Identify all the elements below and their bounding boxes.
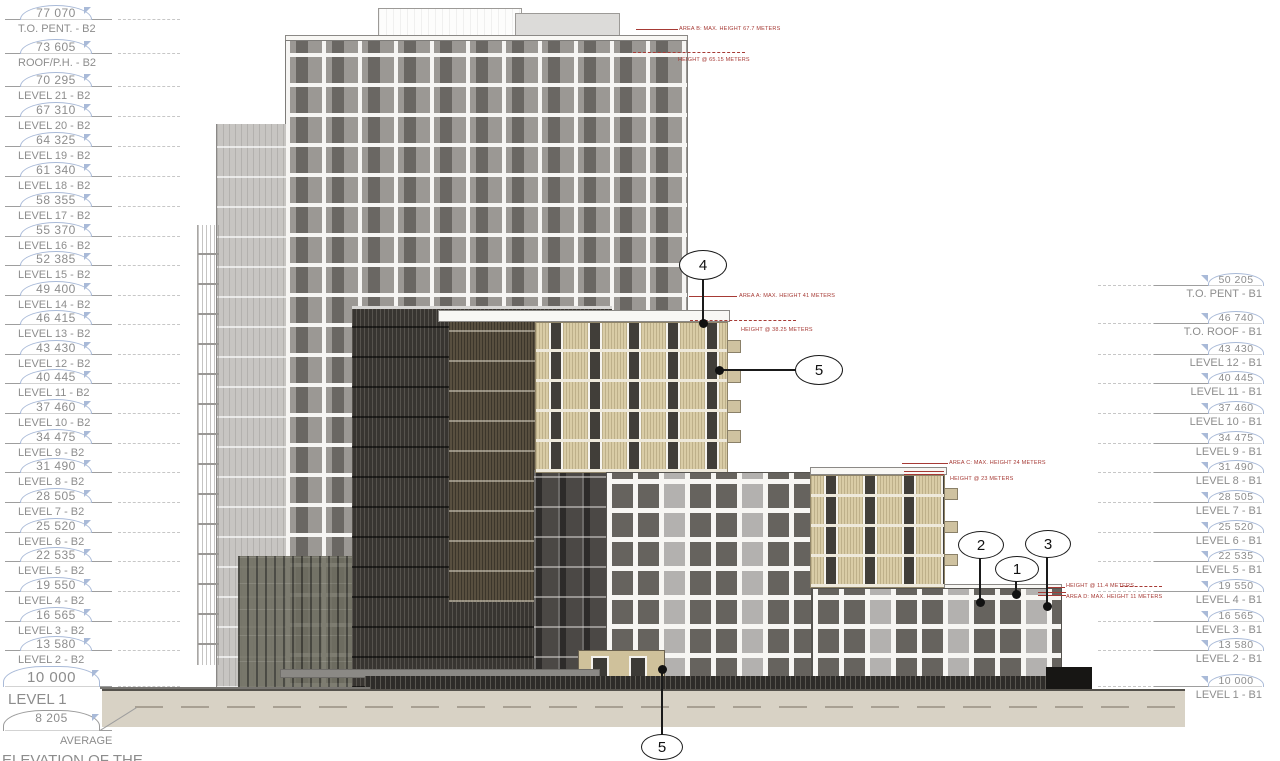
elevation-value: 22 535 [1208,549,1264,562]
level-label: LEVEL 1 - B1 [1156,689,1262,701]
area-a-building [535,322,728,473]
elevation-value: 13 580 [1208,638,1264,651]
annotation-height-line [633,52,745,53]
callout-anchor-dot [715,366,724,375]
level-witness-dashes [1098,621,1156,622]
level-label: LEVEL 4 - B1 [1156,594,1262,606]
detail-callout-3: 3 [1025,530,1071,558]
level-label: LEVEL 7 - B1 [1156,505,1262,517]
elevation-value: 67 310 [20,102,92,117]
elevation-value: 43 430 [20,340,92,355]
arc-end-tick [84,41,91,48]
area-c-building [810,475,945,588]
area-b-height-at-label: HEIGHT @ 65.15 METERS [678,57,750,63]
arc-end-tick [1201,676,1208,683]
level-witness-dashes [118,116,180,117]
elevation-value: 22 535 [20,547,92,562]
area-c-balcony [944,521,958,533]
level-witness-dashes [1098,502,1156,503]
arc-end-tick [1201,492,1208,499]
level-witness-dashes [1098,532,1156,533]
arc-end-tick [84,7,91,14]
level-witness-dashes [118,443,180,444]
level-witness-dashes [118,206,180,207]
elevation-value: 13 580 [20,636,92,651]
arc-end-tick [84,401,91,408]
level-label: LEVEL 11 - B2 [18,387,90,399]
elevation-value: 37 460 [20,399,92,414]
arc-end-tick [84,164,91,171]
level-label: LEVEL 4 - B2 [18,595,84,607]
level-witness-dashes [118,354,180,355]
level-witness-dashes [118,472,180,473]
elevation-value: 34 475 [20,429,92,444]
arc-end-tick [1201,551,1208,558]
callout-anchor-dot [1012,590,1021,599]
level-witness-dashes [118,324,180,325]
elevation-value: 52 385 [20,251,92,266]
elevation-value: 31 490 [1208,460,1264,473]
elevation-value: 77 070 [20,5,92,20]
annotation-height-line [1120,586,1162,587]
level-label: LEVEL 15 - B2 [18,269,90,281]
level-witness-dashes [1098,443,1156,444]
dark-building-balcony-section [449,318,538,602]
level-label: LEVEL 8 - B2 [18,476,84,488]
level-label: LEVEL 2 - B1 [1156,653,1262,665]
level-witness-dashes [118,532,180,533]
arc-end-tick [1201,433,1208,440]
elevation-value: 34 475 [1208,431,1264,444]
area-a-max-height-label: AREA A: MAX. HEIGHT 41 METERS [739,293,835,299]
elevation-value: 64 325 [20,132,92,147]
level-label: LEVEL 13 - B2 [18,328,90,340]
lowrise-area-d [812,588,1062,688]
level-witness-dashes [118,265,180,266]
elevation-value: 43 430 [1208,342,1264,355]
arc-end-tick [84,74,91,81]
arc-end-tick [84,104,91,111]
arc-end-tick [1201,344,1208,351]
level-label: T.O. PENT. - B2 [18,23,96,35]
area-a-parapet [438,310,730,322]
detail-callout-1: 1 [995,556,1039,582]
arc-end-tick [1201,373,1208,380]
area-a-balcony [727,430,741,443]
elevation-value: 50 205 [1208,273,1264,286]
detail-callout-4: 4 [679,250,727,280]
elevation-value: 16 565 [1208,609,1264,622]
level-label: LEVEL 11 - B1 [1156,386,1262,398]
level-label: LEVEL 12 - B1 [1156,357,1262,369]
level-label: LEVEL 1 [8,691,67,708]
grade-footnote-line2: ELEVATION OF THE [2,752,143,761]
elevation-value: 70 295 [20,72,92,87]
level-witness-dashes [118,621,180,622]
arc-end-tick [84,638,91,645]
elevation-value: 46 415 [20,310,92,325]
level-witness-dashes [1098,686,1156,687]
area-a-balcony [727,340,741,353]
level-label: LEVEL 2 - B2 [18,654,84,666]
level-witness-dashes [118,146,180,147]
arc-end-tick [92,714,99,721]
callout-anchor-dot [658,665,667,674]
arc-end-tick [84,283,91,290]
detail-callout-2: 2 [958,531,1004,559]
level-witness-dashes [118,176,180,177]
level-witness-dashes [118,86,180,87]
level-witness-dashes [1098,650,1156,651]
level-label: LEVEL 8 - B1 [1156,475,1262,487]
level-witness-dashes [118,383,180,384]
level-witness-dashes [1098,285,1156,286]
arc-end-tick [1201,275,1208,282]
arc-end-tick [1201,522,1208,529]
elevation-value: 40 445 [20,369,92,384]
arc-end-tick [84,224,91,231]
annotation-leader-line [689,296,737,297]
annotation-double-line [1038,595,1066,596]
level-witness-dashes [1098,354,1156,355]
elevation-value: 19 550 [20,577,92,592]
elevation-value: 28 505 [20,488,92,503]
elevation-value: 46 740 [1208,311,1264,324]
elevation-value: 19 550 [1208,579,1264,592]
level-witness-dashes [118,650,180,651]
detail-callout-5: 5 [795,355,843,385]
annotation-double-line [1038,592,1066,593]
level-witness-dashes [118,561,180,562]
arc-end-tick [1201,611,1208,618]
arc-end-tick [84,579,91,586]
level-label: LEVEL 19 - B2 [18,150,90,162]
area-a-height-at-label: HEIGHT @ 38.25 METERS [741,327,813,333]
elevation-drawing: AREA B: MAX. HEIGHT 67.7 METERS HEIGHT @… [0,0,1280,761]
sidewalk-joint-line [135,706,1175,708]
arc-end-tick [84,549,91,556]
level-witness-dashes [1098,472,1156,473]
elevation-value: 28 505 [1208,490,1264,503]
level-witness-dashes [118,295,180,296]
elevation-value: 49 400 [20,281,92,296]
area-c-balcony [944,554,958,566]
level-witness-dashes [118,502,180,503]
ground-sidewalk [102,689,1185,727]
street-fence [365,676,1062,690]
level-label: T.O. ROOF - B1 [1156,326,1262,338]
callout-anchor-dot [976,598,985,607]
annotation-leader-line [1046,587,1065,588]
arc-end-tick [1201,313,1208,320]
area-b-max-height-label: AREA B: MAX. HEIGHT 67.7 METERS [679,26,780,32]
level-witness-dashes [1098,383,1156,384]
level-witness-dashes [118,686,180,687]
area-c-balcony [944,488,958,500]
level-witness-dashes [118,236,180,237]
elevation-value: 40 445 [1208,371,1264,384]
level-witness-dashes [1098,561,1156,562]
detail-callout-5: 5 [641,734,683,760]
arc-end-tick [84,134,91,141]
annotation-double-line [904,471,944,472]
tower-wing-balconies [197,225,219,665]
elevation-value: 25 520 [20,518,92,533]
arc-end-tick [84,431,91,438]
area-a-balcony [727,400,741,413]
level-witness-dashes [1098,323,1156,324]
level-label: LEVEL 3 - B1 [1156,624,1262,636]
level-label: LEVEL 10 - B2 [18,417,90,429]
arc-end-tick [92,670,99,677]
level-label: LEVEL 18 - B2 [18,180,90,192]
elevation-value: 37 460 [1208,401,1264,414]
level-witness-dashes [118,53,180,54]
elevation-value: 16 565 [20,607,92,622]
annotation-leader-line [636,29,678,30]
elevation-value: 10 000 [1208,674,1264,687]
area-c-height-at-label: HEIGHT @ 23 METERS [950,476,1013,482]
elevation-value: 61 340 [20,162,92,177]
arc-end-tick [1201,403,1208,410]
level-label: LEVEL 20 - B2 [18,120,90,132]
annotation-double-line [904,474,944,475]
level-label: LEVEL 5 - B1 [1156,564,1262,576]
level-witness-dashes [118,591,180,592]
arc-end-tick [84,520,91,527]
level-label: LEVEL 5 - B2 [18,565,84,577]
level-label: LEVEL 10 - B1 [1156,416,1262,428]
elevation-value: 55 370 [20,222,92,237]
arc-end-tick [84,194,91,201]
elevation-value: 10 000 [3,666,100,687]
arc-end-tick [84,342,91,349]
arc-end-tick [84,609,91,616]
arc-end-tick [84,460,91,467]
elevation-value: 58 355 [20,192,92,207]
level-label: AVERAGE [60,735,112,747]
level-witness-dashes [1098,591,1156,592]
level-label: LEVEL 6 - B1 [1156,535,1262,547]
level-label: LEVEL 21 - B2 [18,90,90,102]
level-label: LEVEL 9 - B1 [1156,446,1262,458]
callout-anchor-dot [699,319,708,328]
arc-end-tick [1201,581,1208,588]
area-a-balcony [727,370,741,383]
elevation-value: 8 205 [3,710,100,731]
arc-end-tick [84,253,91,260]
callout-anchor-dot [1043,602,1052,611]
level-witness-dashes [118,19,180,20]
level-label: ROOF/P.H. - B2 [18,57,96,69]
level-label: LEVEL 17 - B2 [18,210,90,222]
arc-end-tick [84,490,91,497]
elevation-value: 31 490 [20,458,92,473]
level-label: LEVEL 7 - B2 [18,506,84,518]
annotation-leader-line [902,463,948,464]
arc-end-tick [84,312,91,319]
area-c-max-height-label: AREA C: MAX. HEIGHT 24 METERS [949,460,1046,466]
level-witness-dashes [1098,413,1156,414]
arc-end-tick [1201,462,1208,469]
level-label: T.O. PENT - B1 [1156,288,1262,300]
elevation-value: 73 605 [20,39,92,54]
arc-end-tick [1201,640,1208,647]
area-d-max-height-label: AREA D: MAX. HEIGHT 11 METERS [1066,594,1162,600]
arc-end-tick [84,371,91,378]
level-witness-dashes [118,413,180,414]
elevation-value: 25 520 [1208,520,1264,533]
